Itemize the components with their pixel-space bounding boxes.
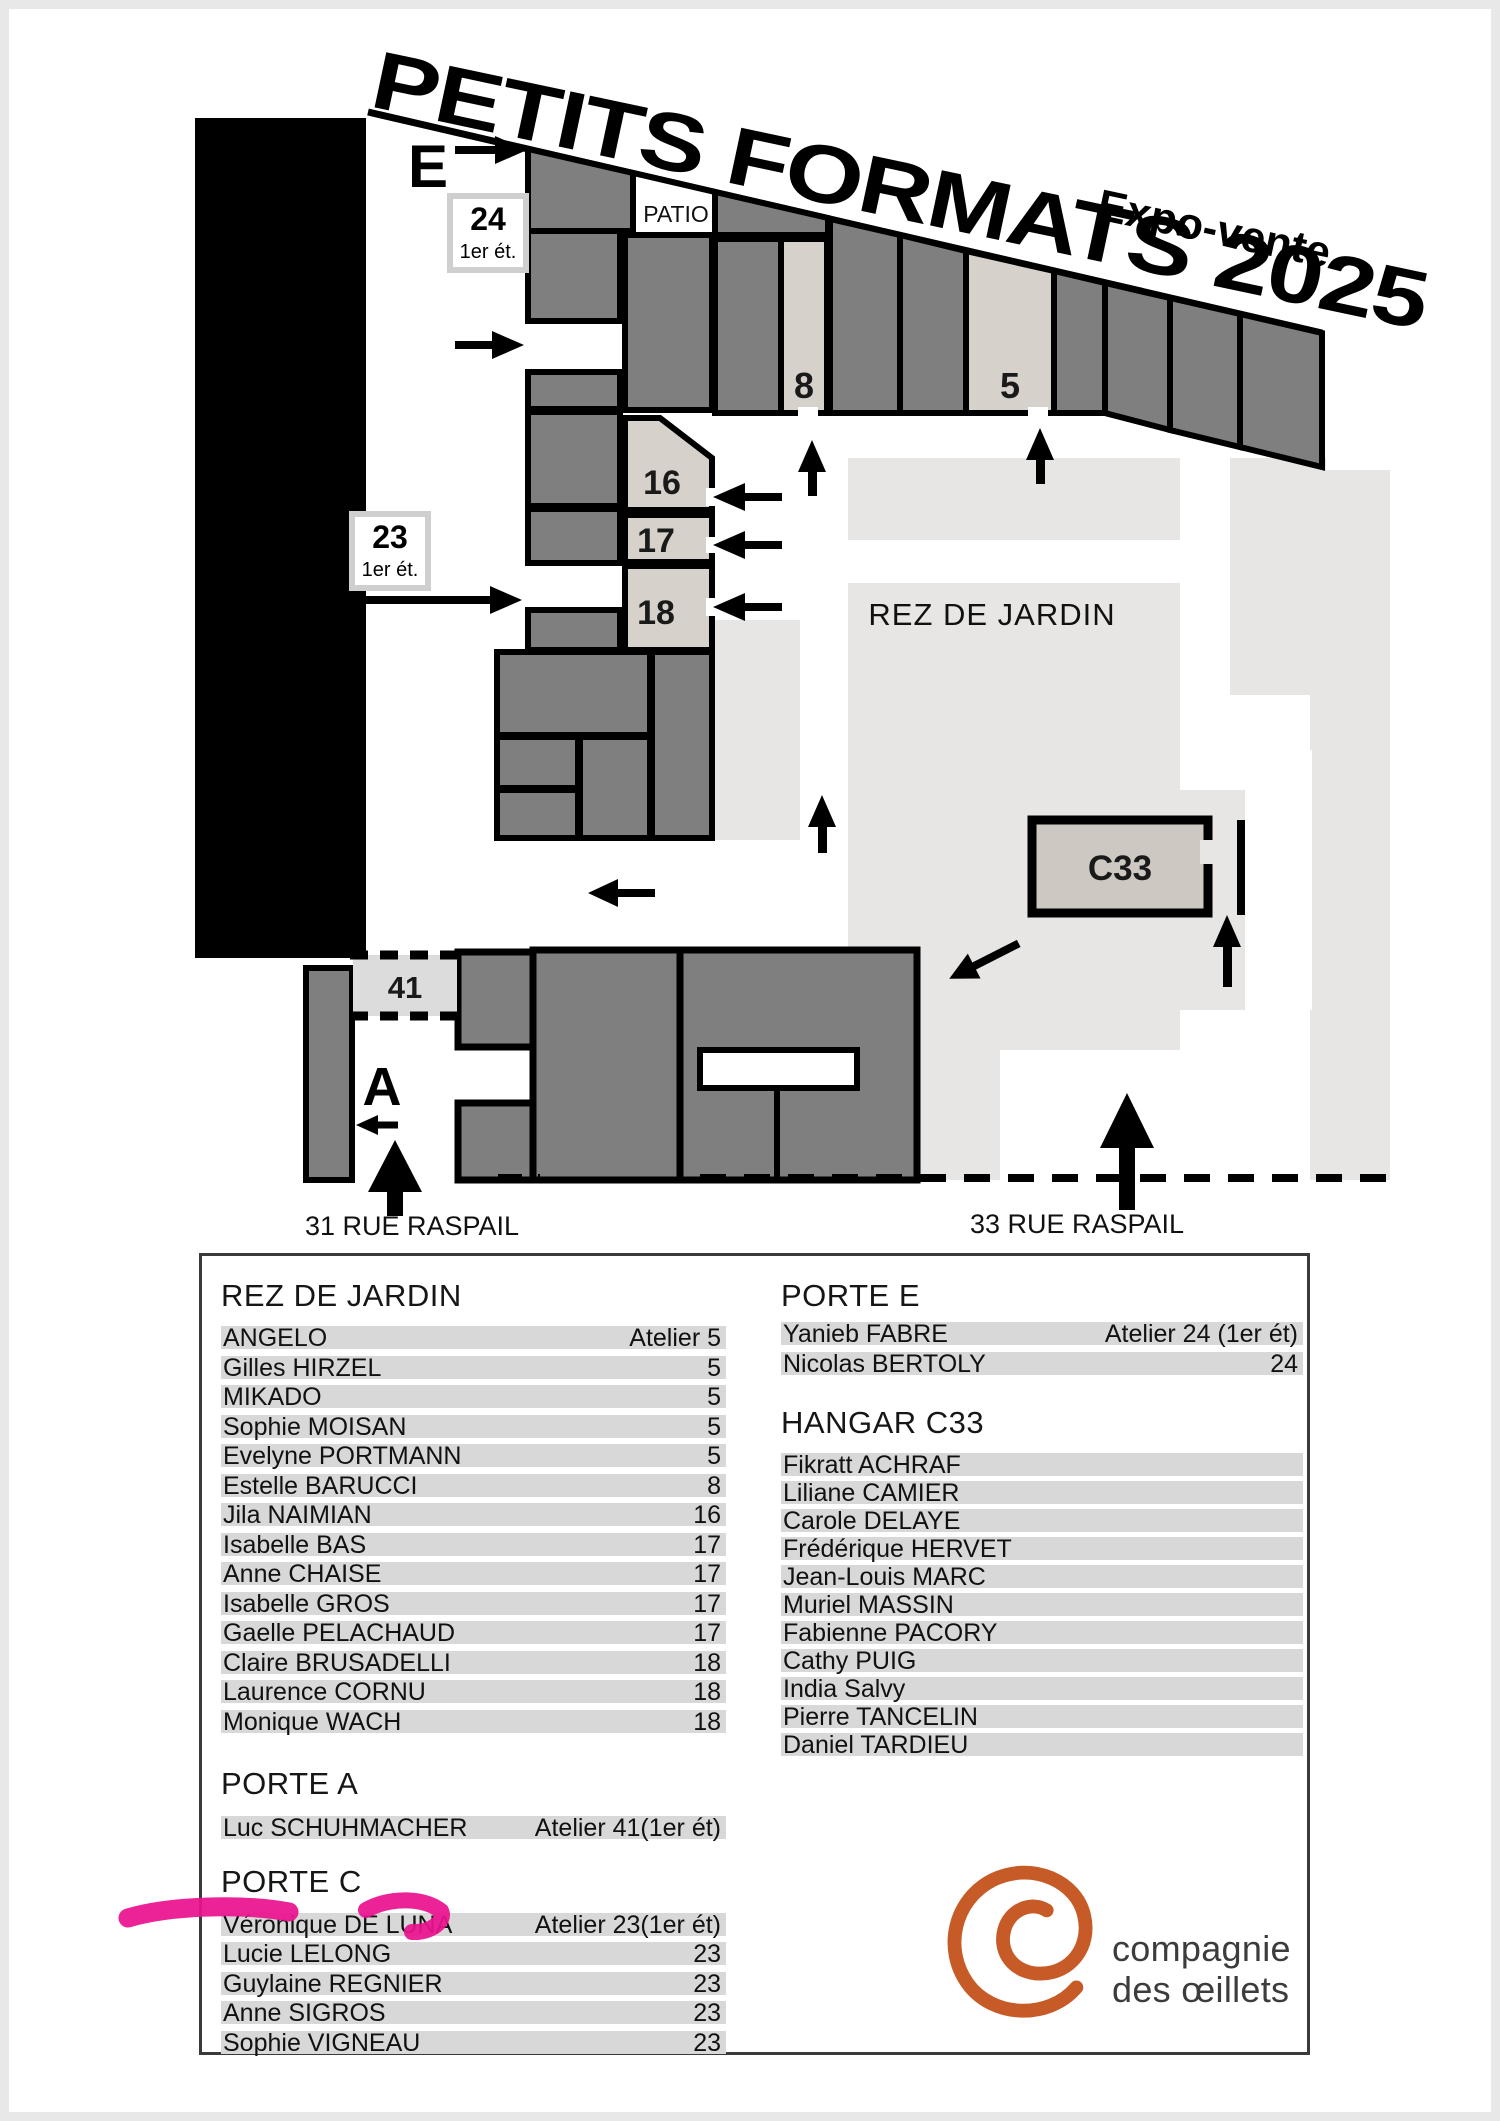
- atelier-number: 18: [693, 1678, 721, 1707]
- list-row: Anne SIGROS 23: [221, 1998, 726, 2028]
- exhibitor-name: Luc SCHUHMACHER: [223, 1814, 467, 1843]
- list-column-left: REZ DE JARDIN ANGELO Atelier 5 Gilles HI…: [221, 1256, 726, 2057]
- room-dark: [1054, 271, 1105, 413]
- atelier-number: Atelier 24 (1er ét): [1105, 1320, 1298, 1349]
- black-wall: [195, 118, 366, 958]
- list-row: Laurence CORNU 18: [221, 1677, 726, 1707]
- exhibitor-name: Pierre TANCELIN: [783, 1703, 978, 1732]
- section-heading-porte-a: PORTE A: [221, 1766, 726, 1802]
- door-gap: [798, 407, 818, 419]
- patio-label: PATIO: [643, 201, 709, 227]
- courtyard-path: [1245, 750, 1312, 1010]
- list-row: Muriel MASSIN: [781, 1590, 1303, 1618]
- atelier-number: 18: [693, 1649, 721, 1678]
- exhibitor-name: Sophie VIGNEAU: [223, 2029, 420, 2058]
- atelier-number: 23: [693, 1940, 721, 1969]
- exhibitor-name: Yanieb FABRE: [783, 1320, 948, 1349]
- room-41-label: 41: [388, 970, 422, 1005]
- list-row: Evelyne PORTMANN 5: [221, 1441, 726, 1471]
- atelier-number: 5: [707, 1354, 721, 1383]
- exhibitor-name: Laurence CORNU: [223, 1678, 426, 1707]
- arrow-small-left-a: [356, 1115, 398, 1135]
- atelier-number: 24: [1270, 1350, 1298, 1379]
- logo-line2: des œillets: [1112, 1969, 1291, 2010]
- exhibitor-name: Cathy PUIG: [783, 1647, 916, 1676]
- list-row: Frédérique HERVET: [781, 1534, 1303, 1562]
- section-heading-porte-c: PORTE C: [221, 1864, 726, 1900]
- street-label-31: 31 RUE RASPAIL: [305, 1211, 519, 1241]
- list-row: Carole DELAYE: [781, 1506, 1303, 1534]
- list-row: Anne CHAISE 17: [221, 1559, 726, 1589]
- list-row: Luc SCHUHMACHER Atelier 41(1er ét): [221, 1813, 726, 1843]
- list-row: Cathy PUIG: [781, 1646, 1303, 1674]
- list-row: Gaelle PELACHAUD 17: [221, 1618, 726, 1648]
- room-8-label: 8: [794, 365, 814, 406]
- room-dark: [1240, 314, 1322, 467]
- list-row: Liliane CAMIER: [781, 1478, 1303, 1506]
- list-row: MIKADO 5: [221, 1382, 726, 1412]
- exhibitor-name: Gaelle PELACHAUD: [223, 1619, 455, 1648]
- exhibitor-name: Anne SIGROS: [223, 1999, 386, 2028]
- spiral-logo-icon: [938, 1856, 1106, 2024]
- arrow-room-18: [713, 593, 782, 621]
- list-row: Lucie LELONG 23: [221, 1939, 726, 1969]
- logo-line1: compagnie: [1112, 1928, 1291, 1969]
- room-18-label: 18: [637, 594, 675, 632]
- arrow-left-mid: [588, 879, 655, 907]
- porte-a-rows: Luc SCHUHMACHER Atelier 41(1er ét): [221, 1813, 726, 1843]
- compagnie-des-oeillets-logo: compagnie des œillets: [938, 1856, 1291, 2024]
- atelier-number: 5: [707, 1413, 721, 1442]
- entrance-a-letter: A: [363, 1057, 402, 1117]
- list-row: Sophie MOISAN 5: [221, 1412, 726, 1442]
- atelier-number: 17: [693, 1619, 721, 1648]
- list-row: Pierre TANCELIN: [781, 1702, 1303, 1730]
- exhibitor-name: MIKADO: [223, 1383, 322, 1412]
- box-24-number: 24: [470, 201, 506, 237]
- exhibitor-name: Fikratt ACHRAF: [783, 1451, 961, 1480]
- list-row: Claire BRUSADELLI 18: [221, 1648, 726, 1678]
- exhibitor-name: Muriel MASSIN: [783, 1591, 954, 1620]
- exhibitor-name: Fabienne PACORY: [783, 1619, 997, 1648]
- exhibitor-name: Estelle BARUCCI: [223, 1472, 418, 1501]
- room-dark: [625, 235, 712, 410]
- atelier-number: Atelier 23(1er ét): [535, 1911, 721, 1940]
- exhibitor-name: Nicolas BERTOLY: [783, 1350, 986, 1379]
- flyer-page: PETITS FORMATS 2025 Expo-vente REZ DE JA…: [0, 0, 1500, 2121]
- room-17-label: 17: [637, 522, 675, 560]
- list-row: Gilles HIRZEL 5: [221, 1353, 726, 1383]
- room-16-label: 16: [643, 464, 681, 502]
- list-row: Jean-Louis MARC: [781, 1562, 1303, 1590]
- room-dark: [1105, 283, 1170, 430]
- list-row: Monique WACH 18: [221, 1707, 726, 1737]
- list-row: ANGELO Atelier 5: [221, 1323, 726, 1353]
- arrow-up-path: [808, 795, 836, 853]
- entrance-e-box: 24 1er ét.: [450, 196, 526, 270]
- atelier-number: 5: [707, 1383, 721, 1412]
- exhibitor-name: Claire BRUSADELLI: [223, 1649, 451, 1678]
- exhibitor-name: Daniel TARDIEU: [783, 1731, 968, 1760]
- list-row: Fabienne PACORY: [781, 1618, 1303, 1646]
- list-row: Jila NAIMIAN 16: [221, 1500, 726, 1530]
- atelier-number: Atelier 5: [629, 1324, 721, 1353]
- exhibitor-name: Lucie LELONG: [223, 1940, 391, 1969]
- room-dark: [830, 219, 900, 413]
- exhibitor-name: Frédérique HERVET: [783, 1535, 1012, 1564]
- exhibitor-name: India Salvy: [783, 1675, 905, 1704]
- entrance-c-letter: C: [302, 571, 342, 634]
- porte-e-rows: Yanieb FABRE Atelier 24 (1er ét) Nicolas…: [781, 1319, 1303, 1378]
- building-notch: [700, 1050, 857, 1088]
- entrance-e-letter: E: [408, 133, 448, 200]
- list-column-right: PORTE E Yanieb FABRE Atelier 24 (1er ét)…: [781, 1256, 1303, 1758]
- exhibitor-name: Isabelle BAS: [223, 1531, 366, 1560]
- arrow-up-room-8: [798, 440, 826, 496]
- rez-rows: ANGELO Atelier 5 Gilles HIRZEL 5 MIKADO …: [221, 1323, 726, 1736]
- hangar-c33-label: C33: [1088, 849, 1152, 888]
- list-row: Estelle BARUCCI 8: [221, 1471, 726, 1501]
- exhibitor-name: Carole DELAYE: [783, 1507, 960, 1536]
- hangar-rows: Fikratt ACHRAF Liliane CAMIER Carole DEL…: [781, 1450, 1303, 1758]
- box-23-number: 23: [372, 519, 408, 555]
- arrow-room-16: [713, 483, 782, 511]
- exhibitor-name: Jila NAIMIAN: [223, 1501, 372, 1530]
- section-heading-porte-e: PORTE E: [781, 1278, 1303, 1314]
- list-row: Isabelle GROS 17: [221, 1589, 726, 1619]
- box-24-floor: 1er ét.: [460, 241, 517, 263]
- exhibitor-name: Véronique DE LUNA: [223, 1911, 452, 1940]
- section-heading-rez-de-jardin: REZ DE JARDIN: [221, 1278, 726, 1314]
- list-row: Sophie VIGNEAU 23: [221, 2028, 726, 2058]
- atelier-number: 16: [693, 1501, 721, 1530]
- atelier-number: 23: [693, 1970, 721, 1999]
- arrow-entrance-31: [368, 1140, 422, 1216]
- list-row: Véronique DE LUNA Atelier 23(1er ét): [221, 1910, 726, 1940]
- door-gap: [1200, 840, 1214, 864]
- room-dark: [900, 235, 966, 413]
- exhibitor-name: Jean-Louis MARC: [783, 1563, 986, 1592]
- logo-text: compagnie des œillets: [1112, 1928, 1291, 2010]
- exhibitor-name: ANGELO: [223, 1324, 327, 1353]
- exhibitor-name: Sophie MOISAN: [223, 1413, 406, 1442]
- atelier-number: 5: [707, 1442, 721, 1471]
- exhibitor-name: Isabelle GROS: [223, 1590, 390, 1619]
- box-23-floor: 1er ét.: [362, 559, 419, 581]
- door-gap: [1028, 407, 1048, 419]
- arrow-room-17: [713, 531, 782, 559]
- atelier-number: Atelier 41(1er ét): [535, 1814, 721, 1843]
- list-row: Fikratt ACHRAF: [781, 1450, 1303, 1478]
- atelier-number: 17: [693, 1560, 721, 1589]
- exhibitor-name: Anne CHAISE: [223, 1560, 381, 1589]
- entrance-c-box: 23 1er ét.: [352, 514, 428, 588]
- room-dark: [715, 239, 781, 413]
- exhibitor-name: Gilles HIRZEL: [223, 1354, 381, 1383]
- atelier-number: 8: [707, 1472, 721, 1501]
- exhibitor-name: Liliane CAMIER: [783, 1479, 959, 1508]
- atelier-number: 23: [693, 2029, 721, 2058]
- street-label-33: 33 RUE RASPAIL: [970, 1209, 1184, 1239]
- room-dark: [1170, 298, 1240, 447]
- atelier-number: 17: [693, 1531, 721, 1560]
- list-row: Nicolas BERTOLY 24: [781, 1349, 1303, 1379]
- exhibitor-name: Guylaine REGNIER: [223, 1970, 443, 1999]
- atelier-number: 18: [693, 1708, 721, 1737]
- exhibitor-name: Monique WACH: [223, 1708, 401, 1737]
- wall-segment: [1237, 820, 1245, 915]
- arrow-entrance-33: [1100, 1093, 1154, 1210]
- section-heading-hangar-c33: HANGAR C33: [781, 1405, 1303, 1441]
- arrows-16-17-18: [713, 483, 782, 621]
- list-row: Yanieb FABRE Atelier 24 (1er ét): [781, 1319, 1303, 1349]
- exhibitor-list-box: REZ DE JARDIN ANGELO Atelier 5 Gilles HI…: [199, 1253, 1310, 2055]
- courtyard-label: REZ DE JARDIN: [868, 597, 1115, 632]
- list-row: Guylaine REGNIER 23: [221, 1969, 726, 1999]
- porte-c-rows: Véronique DE LUNA Atelier 23(1er ét) Luc…: [221, 1910, 726, 2058]
- arrow-entrance-e2: [455, 331, 524, 359]
- atelier-number: 17: [693, 1590, 721, 1619]
- list-row: India Salvy: [781, 1674, 1303, 1702]
- room-5-label: 5: [1000, 365, 1020, 406]
- list-row: Isabelle BAS 17: [221, 1530, 726, 1560]
- atelier-number: 23: [693, 1999, 721, 2028]
- list-row: Daniel TARDIEU: [781, 1730, 1303, 1758]
- floor-plan-map: PETITS FORMATS 2025 Expo-vente REZ DE JA…: [0, 0, 1500, 1250]
- exhibitor-name: Evelyne PORTMANN: [223, 1442, 462, 1471]
